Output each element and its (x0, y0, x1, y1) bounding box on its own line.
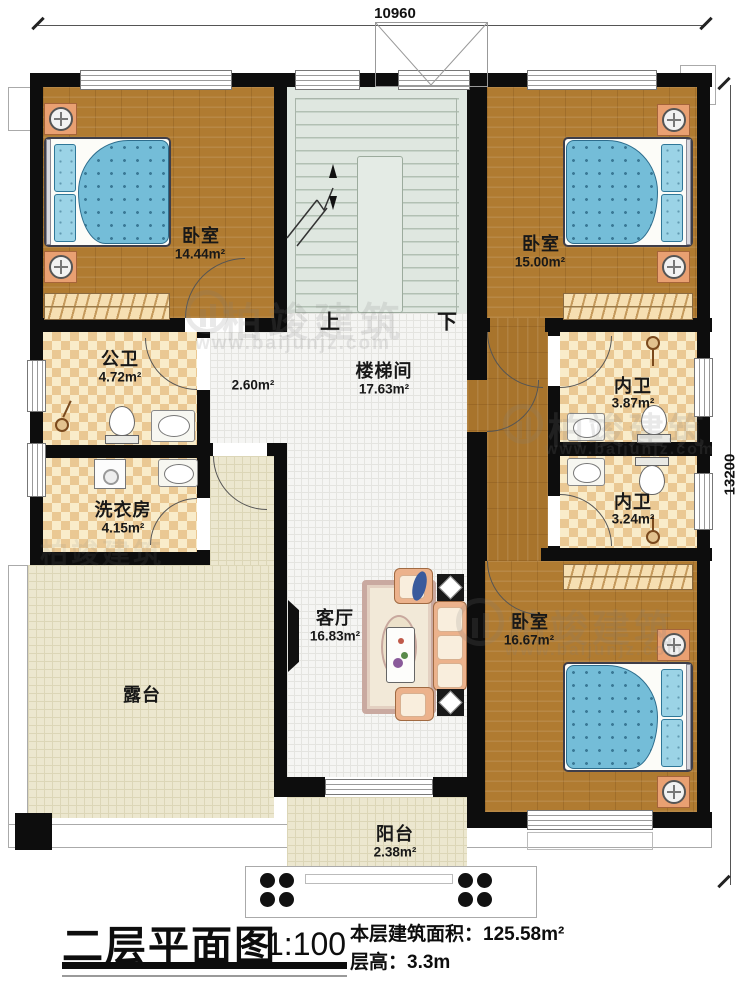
terrace-parapet-left (8, 565, 28, 848)
watermark-brand: 柏竣建筑 (40, 532, 164, 572)
balcony-column (279, 892, 294, 907)
room-label-ensuite-1: 内卫 (614, 372, 652, 398)
pillow (661, 194, 683, 242)
terrace-column (15, 813, 52, 850)
headboard (686, 664, 691, 770)
wall (467, 432, 487, 561)
shower-head-icon (646, 336, 660, 350)
floor-area-value: 125.58m² (483, 924, 564, 945)
room-label-public-bathroom: 公卫 (101, 345, 139, 371)
nightstand (44, 103, 77, 135)
room-area-stairwell: 17.63m² (359, 382, 409, 397)
dimension-tick (699, 17, 712, 30)
room-label-stairwell: 楼梯间 (356, 357, 413, 383)
room-label-bedroom-bottom-right: 卧室 (511, 608, 549, 634)
window (295, 70, 360, 90)
window (694, 473, 713, 530)
balcony-column (279, 873, 294, 888)
balcony-column (477, 873, 492, 888)
room-label-ensuite-2: 内卫 (614, 488, 652, 514)
side-table (437, 689, 464, 716)
washing-machine (94, 459, 126, 489)
balcony-parapet-rail (305, 874, 453, 884)
headboard (686, 139, 691, 245)
sink (158, 459, 198, 487)
pillow (661, 719, 683, 767)
window (527, 70, 657, 90)
wall (274, 777, 325, 797)
watermark-logo (456, 598, 504, 646)
balcony-column (260, 892, 275, 907)
room-area-bedroom-top-right: 15.00m² (515, 255, 565, 270)
stair-up-label: 上 (320, 306, 340, 335)
wardrobe (563, 564, 693, 590)
plan-scale: 1:100 (266, 926, 346, 963)
floor-plan-canvas: 10960 13200 (0, 0, 750, 989)
blanket (566, 665, 658, 769)
wall (30, 445, 210, 458)
room-area-ensuite-2: 3.24m² (612, 512, 655, 527)
balcony-column (260, 873, 275, 888)
armchair (394, 568, 433, 604)
pillow (661, 144, 683, 192)
wall (433, 777, 480, 797)
side-table-top (438, 690, 462, 714)
wall (548, 332, 560, 336)
window (27, 360, 46, 412)
wardrobe (563, 293, 693, 320)
room-label-bedroom-top-right: 卧室 (522, 230, 560, 256)
room-area-balcony: 2.38m² (374, 845, 417, 860)
toilet (109, 406, 135, 436)
headboard (46, 139, 51, 245)
pillow (661, 669, 683, 717)
wall (541, 548, 712, 561)
title-underline-thick (62, 962, 347, 969)
room-area-public-bathroom: 4.72m² (99, 370, 142, 385)
room-label-laundry: 洗衣房 (95, 496, 152, 522)
nightstand (44, 251, 77, 283)
lamp-icon (662, 255, 686, 279)
wall (274, 443, 287, 780)
stair-break-line (283, 152, 373, 252)
room-area-bedroom-top-left: 14.44m² (175, 247, 225, 262)
window-sill (527, 832, 653, 850)
cushion (437, 663, 463, 688)
flower-decor (393, 658, 403, 668)
coffee-table (386, 627, 415, 683)
watermark-url: www.baijunjz.com (545, 441, 715, 459)
sink (151, 410, 195, 442)
title-underline-thin (62, 975, 347, 977)
wall (30, 318, 185, 332)
dimension-tick (717, 875, 730, 888)
wall (197, 443, 213, 456)
cushion (437, 635, 463, 660)
flower-decor (401, 652, 408, 659)
wall (467, 87, 487, 380)
room-area-corridor: 2.60m² (232, 378, 275, 393)
room-area-laundry: 4.15m² (102, 521, 145, 536)
room-label-terrace: 露台 (123, 681, 161, 707)
blanket (78, 140, 169, 244)
wall (545, 318, 712, 332)
lamp-icon (662, 108, 686, 132)
dimension-tick (31, 17, 44, 30)
floor-area-text: 本层建筑面积：125.58m² (350, 919, 564, 946)
stair-down-label: 下 (437, 306, 457, 335)
wall (467, 548, 487, 561)
window (527, 810, 653, 830)
floor-height-label: 层高： (350, 952, 407, 973)
toilet-tank (105, 435, 139, 444)
room-area-living-room: 16.83m² (310, 629, 360, 644)
nightstand (657, 251, 690, 283)
sliding-door (325, 779, 433, 795)
nightstand (657, 104, 690, 136)
shower-stem (652, 350, 654, 366)
basin (164, 464, 194, 484)
wardrobe (44, 293, 170, 320)
flower-decor (398, 638, 404, 644)
window (80, 70, 232, 90)
lamp-icon (662, 780, 686, 804)
room-label-balcony: 阳台 (376, 820, 414, 846)
lamp-icon (49, 107, 73, 131)
room-label-living-room: 客厅 (316, 604, 354, 630)
nightstand (657, 776, 690, 808)
shower-head-icon (55, 418, 69, 432)
washer-drum (103, 469, 119, 485)
balcony-column (458, 873, 473, 888)
bed (44, 137, 171, 247)
room-label-bedroom-top-left: 卧室 (182, 222, 220, 248)
watermark-logo (503, 404, 543, 444)
cushion (400, 693, 426, 717)
side-table (437, 574, 464, 601)
pillow (54, 144, 76, 192)
pillow (54, 194, 76, 242)
bay-window (375, 22, 488, 88)
right-dimension-label: 13200 (722, 445, 739, 505)
floor-area-label: 本层建筑面积： (350, 924, 483, 945)
balcony-column (477, 892, 492, 907)
room-area-ensuite-1: 3.87m² (612, 396, 655, 411)
lamp-icon (49, 255, 73, 279)
floor-height-value: 3.3m (407, 952, 450, 973)
tv (288, 600, 299, 672)
bed (563, 137, 693, 247)
top-dimension-label: 10960 (355, 5, 435, 22)
dimension-tick (717, 77, 730, 90)
balcony-column (458, 892, 473, 907)
basin (158, 415, 190, 437)
armchair (395, 687, 434, 721)
blanket (566, 140, 658, 244)
window (27, 443, 46, 497)
basin (573, 463, 601, 483)
room-area-bedroom-bottom-right: 16.67m² (504, 633, 554, 648)
side-table-top (438, 575, 462, 599)
shower-head-icon (646, 530, 660, 544)
top-dimension-line (38, 25, 706, 26)
floor-height-text: 层高：3.3m (350, 947, 450, 974)
watermark-url: www.baijunjz.com (195, 333, 391, 355)
sink (567, 458, 605, 486)
bed (563, 662, 693, 772)
